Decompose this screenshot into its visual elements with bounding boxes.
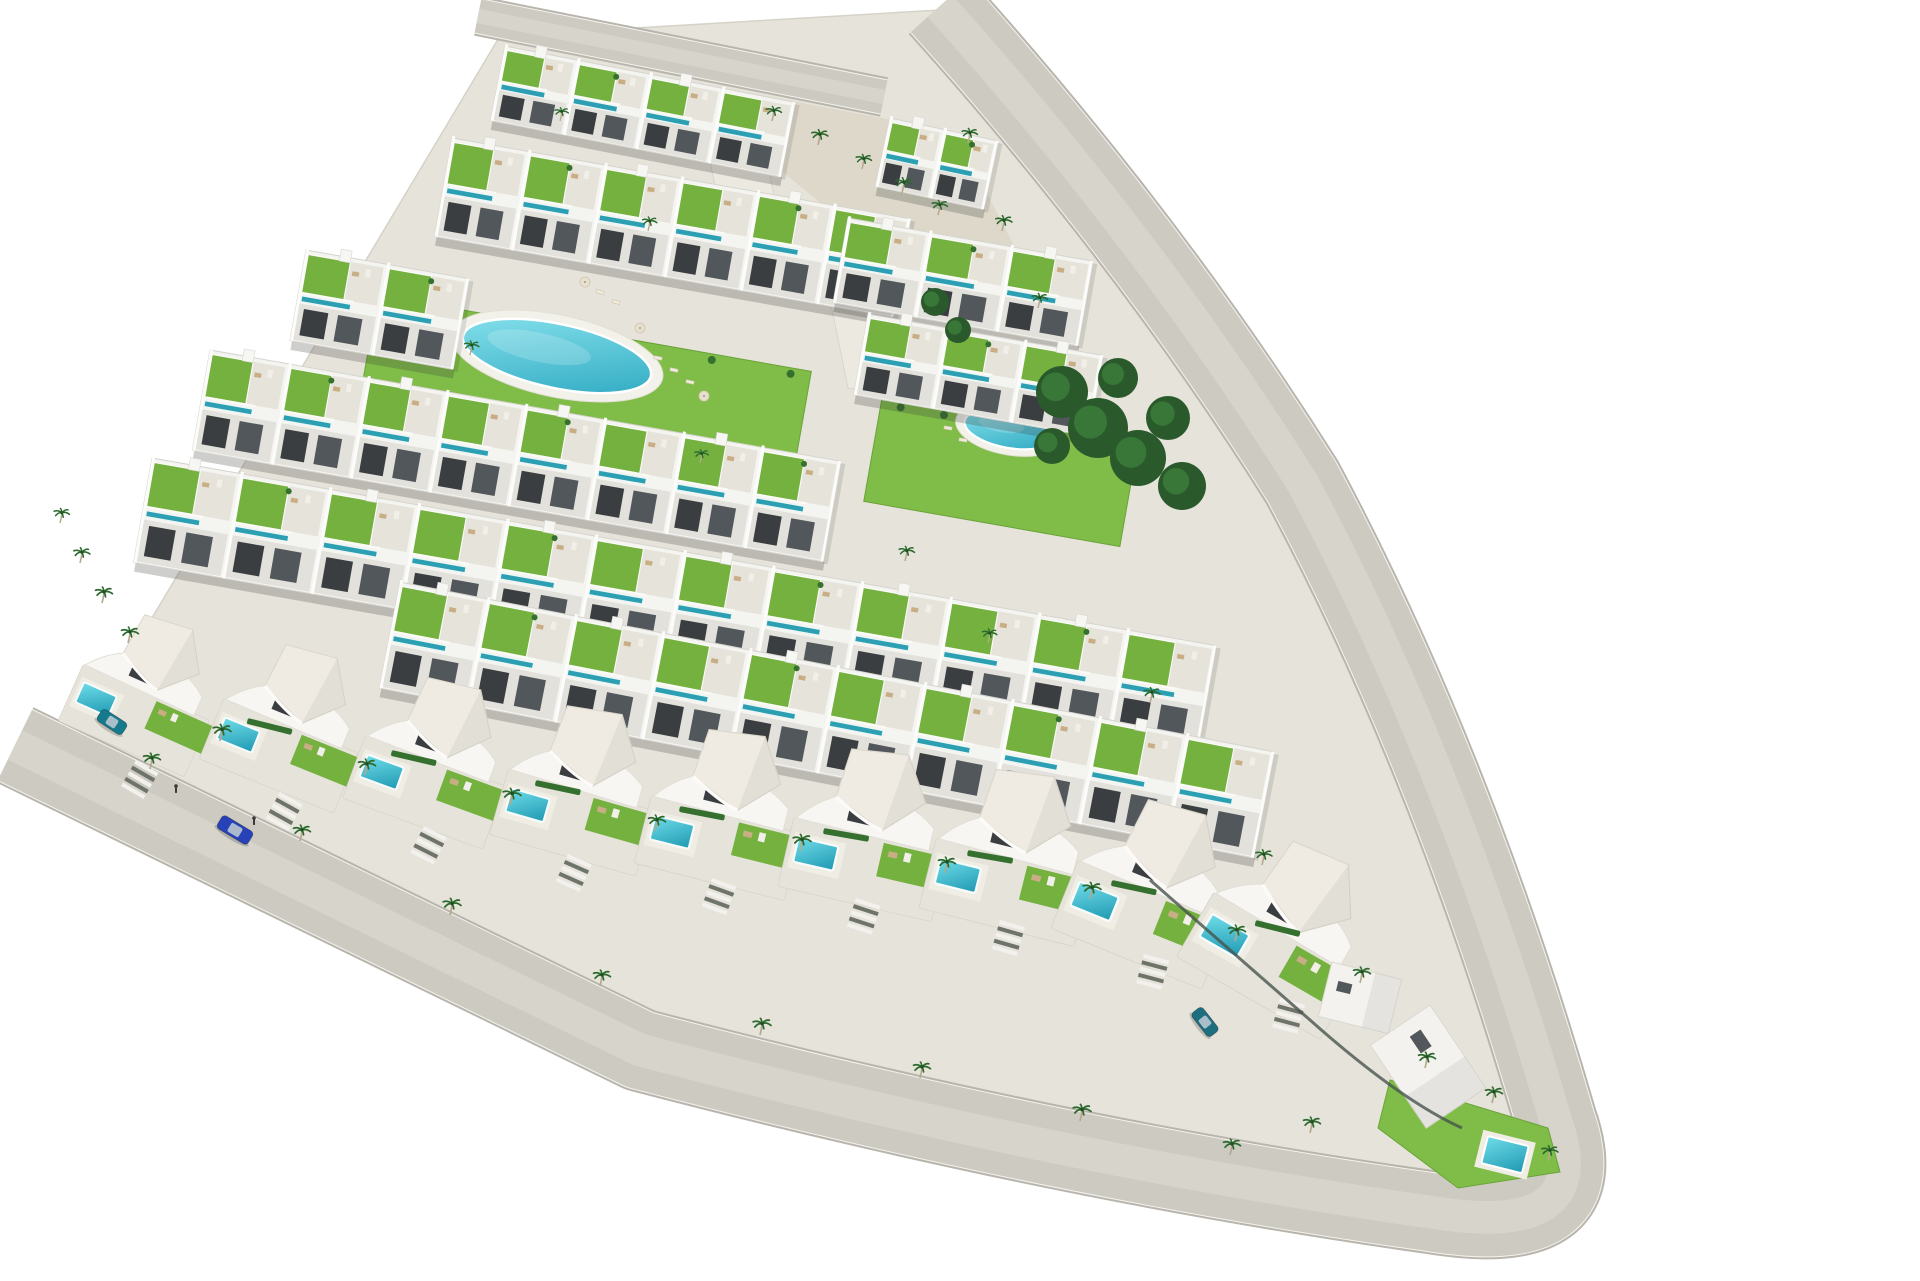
tree (945, 317, 971, 343)
render-canvas (0, 0, 1920, 1280)
tree (1146, 396, 1190, 440)
aerial-development-render: Bird's-eye architectural visualization o… (0, 0, 1920, 1280)
tree (1034, 428, 1070, 464)
tree (921, 288, 949, 316)
tree (1158, 462, 1206, 510)
tree (1110, 430, 1166, 486)
parasol (699, 391, 709, 401)
parasol (580, 277, 590, 287)
parasol (635, 323, 645, 333)
tree (1098, 358, 1138, 398)
